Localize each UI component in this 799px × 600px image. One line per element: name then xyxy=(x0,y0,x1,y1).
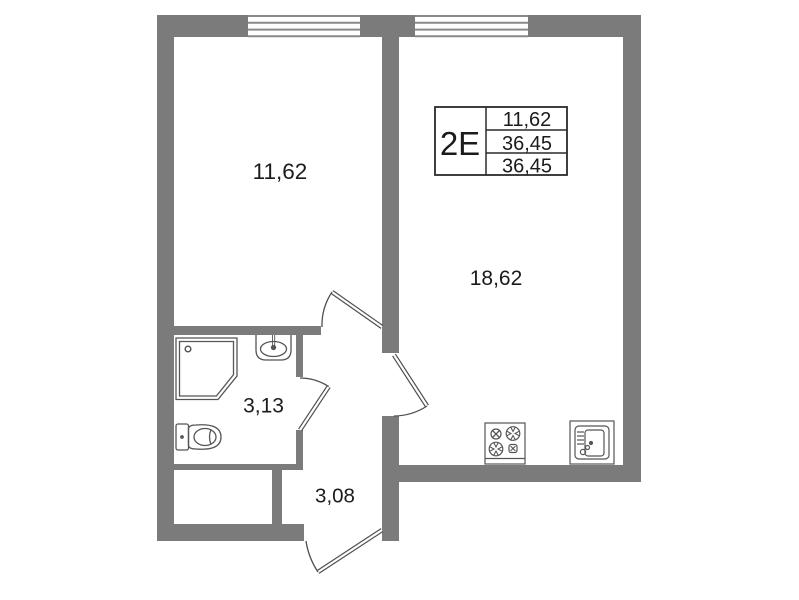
svg-text:36,45: 36,45 xyxy=(502,156,552,178)
svg-text:3,13: 3,13 xyxy=(243,395,284,418)
svg-text:3,08: 3,08 xyxy=(315,485,355,508)
svg-text:18,62: 18,62 xyxy=(470,267,523,290)
svg-text:2Е: 2Е xyxy=(440,125,480,162)
svg-text:36,45: 36,45 xyxy=(502,133,552,155)
svg-text:11,62: 11,62 xyxy=(253,159,308,184)
svg-text:11,62: 11,62 xyxy=(503,109,552,131)
